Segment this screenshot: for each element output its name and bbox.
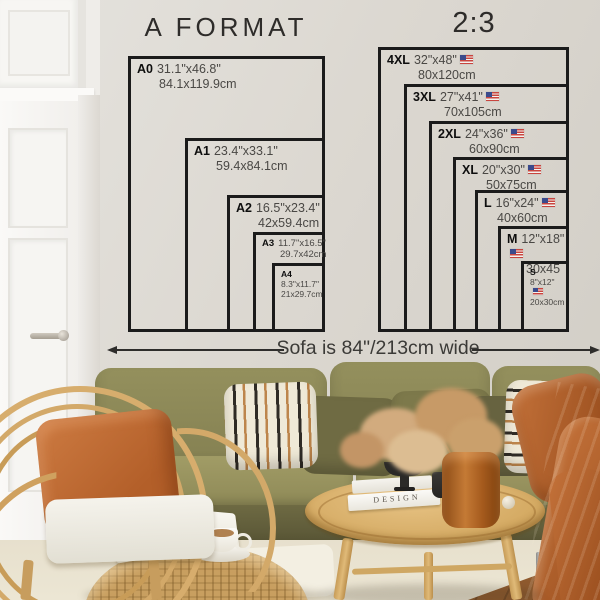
poster-size-guide-photo: A FORMAT 2:3 A031.1"x46.8" 84.1x119.9cm … (0, 0, 600, 600)
size-inches: 24"x36" (465, 127, 508, 141)
size-inches: 23.4"x33.1" (214, 144, 278, 158)
size-cm: 80x120cm (418, 68, 564, 83)
size-cm: 20x30cm (530, 297, 564, 307)
left-chart-title: A FORMAT (126, 12, 326, 43)
transom-panel (8, 10, 70, 76)
size-label: 4XL32"x48" 80x120cm (381, 50, 566, 83)
width-arrow-right (472, 349, 590, 351)
size-label: A123.4"x33.1" 59.4x84.1cm (188, 141, 322, 174)
us-flag-icon (511, 129, 524, 138)
door-handle-knob (58, 330, 69, 341)
us-flag-icon (533, 288, 543, 295)
size-code: A2 (236, 201, 252, 215)
size-inches: 16"x24" (496, 196, 539, 210)
size-label: 3XL27"x41" 70x105cm (407, 87, 566, 120)
size-cm: 60x90cm (469, 142, 564, 157)
size-code: 3XL (413, 90, 436, 104)
size-label: L16"x24" 40x60cm (478, 193, 566, 226)
decor-sphere (502, 496, 515, 509)
size-inches: 27"x41" (440, 90, 483, 104)
size-cm: 84.1x119.9cm (159, 77, 320, 92)
size-label: S8"x12" 20x30cm (524, 264, 566, 307)
size-label: A031.1"x46.8" 84.1x119.9cm (131, 59, 322, 92)
white-seat-cushion (45, 494, 215, 564)
size-cm: 59.4x84.1cm (216, 159, 320, 174)
dried-flowers (340, 432, 384, 468)
arrow-right-icon (590, 346, 600, 354)
size-box-s: S8"x12" 20x30cm (521, 261, 569, 332)
size-code: 2XL (438, 127, 461, 141)
size-code: S (530, 267, 564, 277)
size-cm: 21x29.7cm (281, 289, 320, 299)
us-flag-icon (528, 165, 541, 174)
us-flag-icon (486, 92, 499, 101)
size-code: M (507, 232, 517, 246)
size-cm: 29.7x42cm (280, 249, 320, 260)
us-flag-icon (510, 249, 523, 258)
table-leg (424, 552, 433, 600)
size-code: A3 (262, 238, 274, 249)
size-inches: 32"x48" (414, 53, 457, 67)
size-label: A216.5"x23.4" 42x59.4cm (230, 198, 322, 231)
size-label: 2XL24"x36" 60x90cm (432, 124, 566, 157)
size-cm: 40x60cm (497, 211, 564, 226)
us-flag-icon (542, 198, 555, 207)
bowl-base (394, 487, 415, 491)
size-cm: 70x105cm (444, 105, 564, 120)
size-inches-text: 8"x12" (530, 277, 554, 287)
size-inches: 16.5"x23.4" (256, 201, 320, 215)
size-code: A0 (137, 62, 153, 76)
size-label: A311.7"x16.5" 29.7x42cm (256, 235, 322, 260)
size-inches: 8"x12" (530, 277, 564, 297)
size-label: XL20"x30" 50x75cm (456, 160, 566, 193)
size-inches: 12"x18" (521, 232, 564, 246)
size-code: XL (462, 163, 478, 177)
us-flag-icon (460, 55, 473, 64)
size-cm: 42x59.4cm (258, 216, 320, 231)
amber-glass-vase (442, 452, 500, 528)
size-code: A1 (194, 144, 210, 158)
size-code: L (484, 196, 492, 210)
size-label: A48.3"x11.7" 21x29.7cm (275, 266, 322, 299)
size-code: A4 (281, 269, 320, 279)
size-inches: 20"x30" (482, 163, 525, 177)
size-inches: 8.3"x11.7" (281, 279, 320, 289)
size-box-a4: A48.3"x11.7" 21x29.7cm (272, 263, 325, 332)
size-inches: 11.7"x16.5" (278, 238, 326, 249)
dried-flowers (388, 430, 448, 474)
door-panel-upper (8, 128, 68, 228)
size-code: 4XL (387, 53, 410, 67)
right-chart-title: 2:3 (424, 7, 524, 40)
size-inches: 31.1"x46.8" (157, 62, 221, 76)
